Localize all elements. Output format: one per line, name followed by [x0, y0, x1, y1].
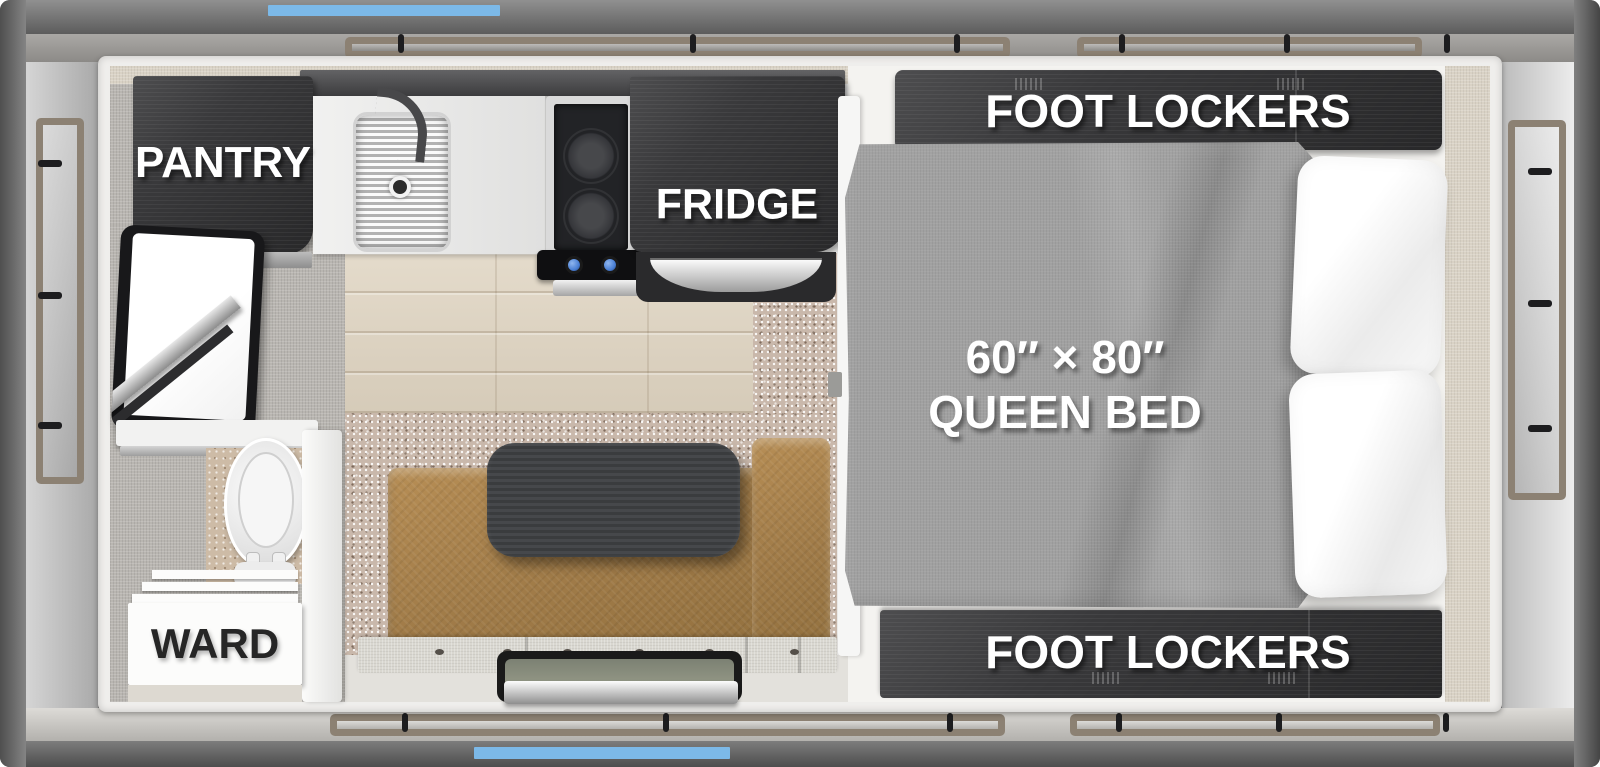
- strap-clip: [663, 713, 669, 732]
- pantry-label: PANTRY: [135, 141, 311, 185]
- strap-clip: [1528, 168, 1552, 175]
- tv: [111, 224, 265, 435]
- bed-size-label: 60″ × 80″: [865, 330, 1265, 385]
- accent-bar-top: [268, 5, 500, 16]
- seat-gap: [798, 637, 801, 673]
- stove-burner: [563, 188, 619, 244]
- strap-clip: [398, 34, 404, 53]
- wardrobe-shelf: [132, 594, 298, 603]
- seat-button: [435, 649, 444, 655]
- strap-clip: [38, 422, 62, 429]
- pillow: [1288, 369, 1448, 598]
- wardrobe-floor: [128, 685, 302, 702]
- strap-clip: [38, 160, 62, 167]
- strap-clip: [1528, 425, 1552, 432]
- frame-right-edge: [1574, 0, 1600, 767]
- toilet-seat-ring: [238, 452, 294, 548]
- frame-left-edge: [0, 0, 26, 767]
- accent-bar-bottom: [474, 747, 730, 759]
- seat-gap: [745, 637, 748, 673]
- strap-clip: [1444, 34, 1450, 53]
- wardrobe-shelf: [152, 570, 298, 579]
- foot-lockers-bottom-label: FOOT LOCKERS: [985, 629, 1350, 675]
- strap-clip: [947, 713, 953, 732]
- foot-lockers-top-label: FOOT LOCKERS: [985, 88, 1350, 134]
- sink-drain: [389, 176, 411, 198]
- pillow: [1289, 155, 1448, 379]
- bed-surround-wall: [1445, 66, 1490, 702]
- camper-floorplan: PANTRY FRIDGE FOOT LOCKERS FOOT LOCKERS …: [0, 0, 1600, 767]
- strap-clip: [1528, 300, 1552, 307]
- strap-clip: [1276, 713, 1282, 732]
- frame-top-bar: [0, 0, 1600, 34]
- strap-clip: [38, 292, 62, 299]
- stove-control-panel: [537, 250, 643, 280]
- awning-panel: [345, 37, 1010, 58]
- frame-bottom-bar: [0, 741, 1600, 767]
- stove-tray: [553, 280, 641, 296]
- bed-label: 60″ × 80″ QUEEN BED: [865, 330, 1265, 440]
- tv-shelf: [116, 420, 318, 446]
- stove-knob: [601, 256, 619, 274]
- awning-panel: [1070, 714, 1440, 736]
- strap-clip: [1119, 34, 1125, 53]
- awning-panel: [1077, 37, 1422, 58]
- entry-handle: [504, 681, 738, 704]
- strap-clip: [402, 713, 408, 732]
- wardrobe-shelf: [142, 582, 298, 591]
- strap-clip: [1443, 713, 1449, 732]
- window-frame-left: [36, 118, 84, 484]
- bed-type-label: QUEEN BED: [865, 385, 1265, 440]
- strap-clip: [1116, 713, 1122, 732]
- stove-knob: [565, 256, 583, 274]
- stove-burner: [563, 128, 619, 184]
- strap-clip: [690, 34, 696, 53]
- bench-backrest-side: [752, 438, 830, 648]
- ward-label: WARD: [151, 623, 279, 665]
- strap-clip: [954, 34, 960, 53]
- seat-button: [790, 649, 799, 655]
- window-frame-right: [1508, 120, 1566, 500]
- dinette-table: [487, 443, 740, 557]
- bath-partition-wall: [302, 430, 342, 702]
- divider-latch: [828, 372, 842, 397]
- strap-clip: [1284, 34, 1290, 53]
- fridge-label: FRIDGE: [656, 184, 818, 227]
